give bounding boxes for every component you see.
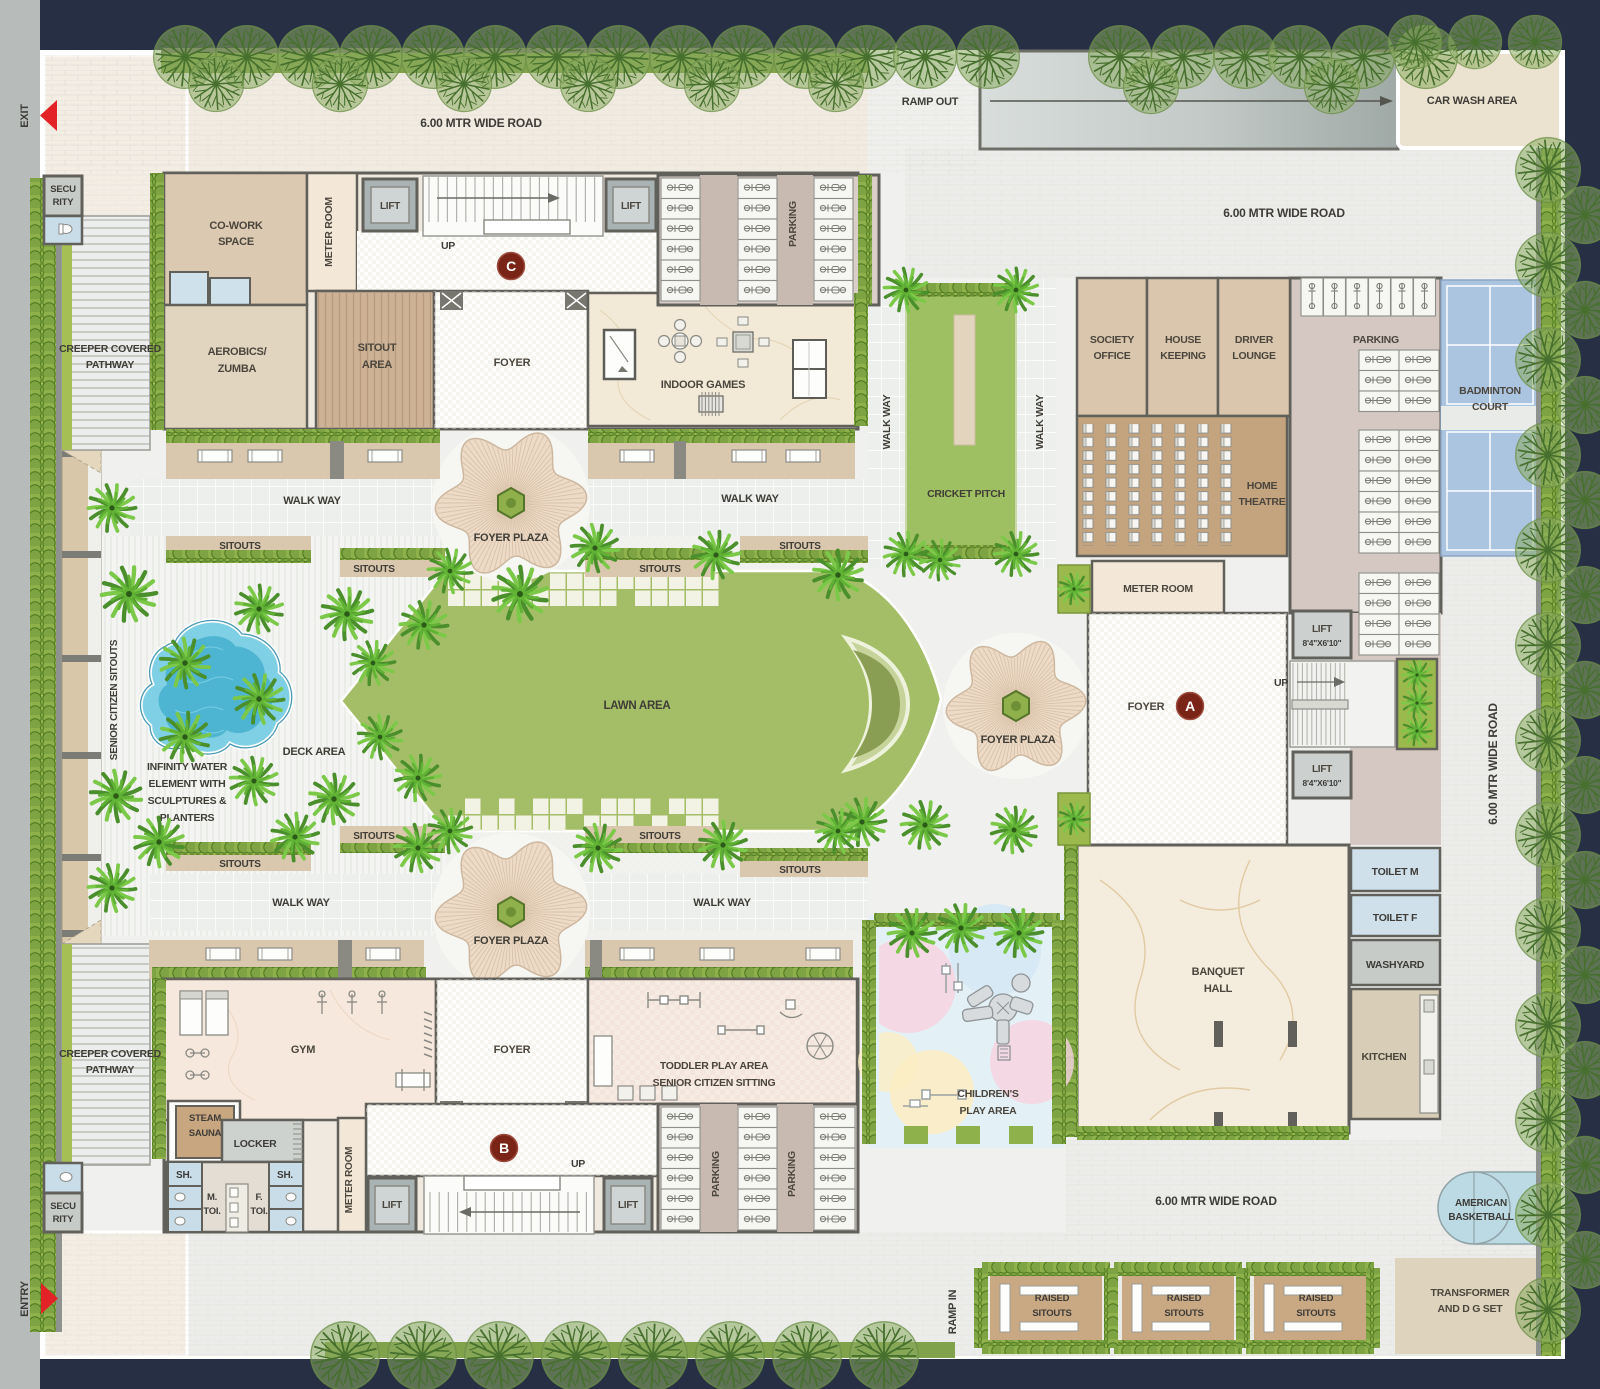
svg-text:TOI.: TOI.: [250, 1206, 267, 1217]
svg-text:CAR WASH AREA: CAR WASH AREA: [1427, 95, 1518, 107]
svg-text:AEROBICS/: AEROBICS/: [208, 346, 267, 358]
svg-text:SITOUTS: SITOUTS: [219, 541, 261, 552]
svg-text:SPACE: SPACE: [218, 236, 254, 248]
svg-text:SITOUTS: SITOUTS: [1296, 1308, 1335, 1319]
svg-text:RAISED: RAISED: [1167, 1293, 1202, 1304]
svg-text:AREA: AREA: [362, 359, 392, 371]
svg-text:METER ROOM: METER ROOM: [323, 197, 335, 267]
svg-text:FOYER PLAZA: FOYER PLAZA: [981, 734, 1056, 746]
svg-text:F.: F.: [256, 1192, 263, 1203]
svg-text:AND D G SET: AND D G SET: [1438, 1303, 1504, 1315]
svg-text:A: A: [1185, 698, 1195, 714]
svg-text:SAUNA: SAUNA: [189, 1128, 222, 1139]
svg-text:OFFICE: OFFICE: [1094, 350, 1131, 362]
svg-text:TOILET M: TOILET M: [1372, 866, 1419, 878]
svg-text:ENTRY: ENTRY: [19, 1280, 31, 1317]
svg-text:TODDLER PLAY AREA: TODDLER PLAY AREA: [660, 1060, 769, 1072]
svg-text:B: B: [499, 1140, 509, 1156]
svg-text:INFINITY WATER: INFINITY WATER: [147, 761, 228, 773]
svg-text:SH.: SH.: [277, 1170, 293, 1181]
svg-text:METER ROOM: METER ROOM: [344, 1147, 355, 1213]
svg-text:KEEPING: KEEPING: [1160, 350, 1206, 362]
svg-text:LOUNGE: LOUNGE: [1232, 350, 1276, 362]
svg-text:PARKING: PARKING: [786, 1151, 798, 1197]
svg-text:CREEPER COVERED: CREEPER COVERED: [59, 1048, 162, 1060]
svg-text:PARKING: PARKING: [710, 1151, 722, 1197]
svg-text:LIFT: LIFT: [618, 1200, 638, 1211]
svg-text:LIFT: LIFT: [1312, 624, 1332, 635]
svg-text:PARKING: PARKING: [1353, 334, 1399, 346]
svg-text:BANQUET: BANQUET: [1192, 966, 1245, 978]
svg-text:PATHWAY: PATHWAY: [86, 1064, 134, 1076]
svg-text:EXIT: EXIT: [19, 104, 31, 128]
svg-text:ZUMBA: ZUMBA: [218, 363, 257, 375]
svg-text:HOME: HOME: [1247, 480, 1278, 492]
svg-text:THEATRE: THEATRE: [1238, 496, 1285, 508]
svg-text:RITY: RITY: [53, 197, 75, 208]
svg-text:CRICKET PITCH: CRICKET PITCH: [927, 488, 1005, 500]
svg-text:SITOUTS: SITOUTS: [639, 564, 681, 575]
svg-text:PLAY AREA: PLAY AREA: [960, 1105, 1018, 1117]
svg-text:SOCIETY: SOCIETY: [1090, 334, 1135, 346]
svg-text:COURT: COURT: [1472, 401, 1509, 413]
svg-text:METER ROOM: METER ROOM: [1123, 583, 1193, 595]
svg-text:PARKING: PARKING: [787, 201, 799, 247]
svg-text:SITOUTS: SITOUTS: [639, 831, 681, 842]
svg-text:FOYER: FOYER: [494, 357, 531, 369]
svg-text:GYM: GYM: [291, 1044, 315, 1056]
svg-text:WALK WAY: WALK WAY: [272, 897, 330, 909]
svg-text:UP: UP: [1274, 677, 1288, 689]
svg-text:6.00 MTR WIDE ROAD: 6.00 MTR WIDE ROAD: [1486, 703, 1500, 825]
svg-text:SITOUTS: SITOUTS: [219, 859, 261, 870]
svg-text:SCULPTURES &: SCULPTURES &: [148, 795, 227, 807]
svg-text:TRANSFORMER: TRANSFORMER: [1431, 1287, 1511, 1299]
svg-text:WASHYARD: WASHYARD: [1366, 959, 1425, 971]
svg-text:SITOUTS: SITOUTS: [353, 831, 395, 842]
svg-text:KITCHEN: KITCHEN: [1362, 1051, 1407, 1063]
svg-text:M.: M.: [207, 1192, 217, 1203]
svg-text:SITOUT: SITOUT: [358, 342, 397, 354]
svg-text:LIFT: LIFT: [621, 201, 641, 212]
svg-text:WALK WAY: WALK WAY: [721, 493, 779, 505]
svg-text:TOILET F: TOILET F: [1373, 912, 1418, 924]
svg-text:UP: UP: [441, 240, 455, 252]
svg-text:WALK WAY: WALK WAY: [881, 394, 893, 449]
svg-text:RITY: RITY: [53, 1214, 75, 1225]
svg-text:6.00 MTR WIDE ROAD: 6.00 MTR WIDE ROAD: [1223, 206, 1345, 220]
svg-text:AMERICAN: AMERICAN: [1455, 1198, 1507, 1209]
svg-text:8'4"X6'10": 8'4"X6'10": [1303, 638, 1342, 648]
svg-text:LIFT: LIFT: [380, 201, 400, 212]
svg-text:BADMINTON: BADMINTON: [1459, 385, 1521, 397]
svg-text:SECU: SECU: [50, 1201, 76, 1212]
svg-text:CO-WORK: CO-WORK: [209, 220, 263, 232]
svg-text:HALL: HALL: [1204, 983, 1233, 995]
svg-text:SITOUTS: SITOUTS: [779, 865, 821, 876]
svg-text:CREEPER COVERED: CREEPER COVERED: [59, 343, 162, 355]
svg-text:RAISED: RAISED: [1035, 1293, 1070, 1304]
svg-text:DRIVER: DRIVER: [1235, 334, 1274, 346]
svg-text:HOUSE: HOUSE: [1165, 334, 1201, 346]
svg-text:STEAM: STEAM: [189, 1113, 221, 1124]
svg-text:RAISED: RAISED: [1299, 1293, 1334, 1304]
svg-text:8'4"X6'10": 8'4"X6'10": [1303, 778, 1342, 788]
svg-text:TOI.: TOI.: [203, 1206, 220, 1217]
svg-text:RAMP OUT: RAMP OUT: [902, 96, 959, 108]
svg-text:C: C: [506, 258, 516, 274]
svg-text:SENIOR CITIZEN SITTING: SENIOR CITIZEN SITTING: [653, 1077, 776, 1089]
svg-text:LAWN AREA: LAWN AREA: [604, 700, 671, 712]
svg-text:SENIOR CITIZEN SITOUTS: SENIOR CITIZEN SITOUTS: [109, 639, 120, 760]
svg-text:FOYER PLAZA: FOYER PLAZA: [474, 532, 549, 544]
svg-text:FOYER: FOYER: [494, 1044, 531, 1056]
svg-text:SITOUTS: SITOUTS: [353, 564, 395, 575]
svg-text:LOCKER: LOCKER: [234, 1138, 278, 1150]
svg-text:PATHWAY: PATHWAY: [86, 359, 134, 371]
svg-text:SH.: SH.: [176, 1170, 192, 1181]
svg-text:SITOUTS: SITOUTS: [1032, 1308, 1071, 1319]
svg-text:CHILDREN'S: CHILDREN'S: [957, 1088, 1018, 1100]
svg-text:WALK WAY: WALK WAY: [1034, 394, 1046, 449]
svg-text:SECU: SECU: [50, 184, 76, 195]
svg-text:FOYER: FOYER: [1128, 701, 1165, 713]
svg-text:WALK WAY: WALK WAY: [283, 495, 341, 507]
svg-text:RAMP IN: RAMP IN: [947, 1289, 959, 1334]
svg-text:DECK AREA: DECK AREA: [283, 746, 346, 758]
svg-text:ELEMENT WITH: ELEMENT WITH: [149, 778, 226, 790]
svg-text:WALK WAY: WALK WAY: [693, 897, 751, 909]
svg-text:UP: UP: [571, 1158, 585, 1170]
svg-text:6.00 MTR WIDE ROAD: 6.00 MTR WIDE ROAD: [420, 116, 542, 130]
svg-text:LIFT: LIFT: [382, 1200, 402, 1211]
svg-text:6.00 MTR WIDE ROAD: 6.00 MTR WIDE ROAD: [1155, 1194, 1277, 1208]
svg-text:BASKETBALL: BASKETBALL: [1448, 1212, 1513, 1223]
svg-text:SITOUTS: SITOUTS: [779, 541, 821, 552]
svg-text:FOYER PLAZA: FOYER PLAZA: [474, 935, 549, 947]
svg-text:LIFT: LIFT: [1312, 764, 1332, 775]
svg-text:SITOUTS: SITOUTS: [1164, 1308, 1203, 1319]
svg-text:INDOOR GAMES: INDOOR GAMES: [661, 379, 745, 391]
